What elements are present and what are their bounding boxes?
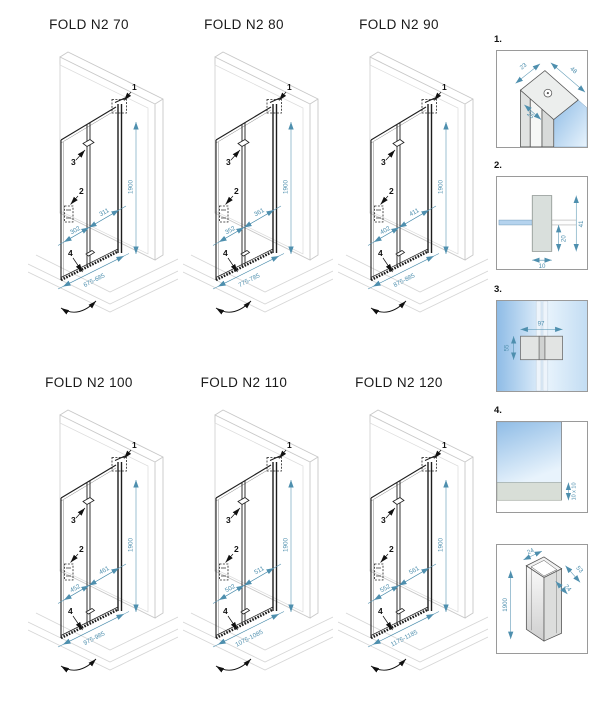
callout-4: 4 bbox=[68, 606, 73, 616]
dim-width-upper: 311 bbox=[98, 207, 111, 218]
callout-2: 2 bbox=[389, 544, 394, 554]
glass-pane bbox=[497, 422, 562, 483]
callout-2: 2 bbox=[79, 544, 84, 554]
fold-spec-sheet: 1. 23 48 25 2. 41 20 10 bbox=[0, 0, 607, 720]
dim-range: 1175-1185 bbox=[390, 629, 420, 649]
callout-1: 1 bbox=[132, 82, 137, 92]
dim-height: 1900 bbox=[438, 180, 445, 195]
diagram-title: FOLD N2 90 bbox=[324, 14, 474, 40]
dim-width-lower: 302 bbox=[69, 225, 82, 236]
detail-2-dim-b: 20 bbox=[560, 235, 567, 242]
dim-range: 1075-1085 bbox=[234, 628, 264, 648]
dim-height: 1900 bbox=[128, 538, 135, 553]
fold-diagram-cell: FOLD N2 120 bbox=[338, 372, 488, 718]
fold-door-drawing: 1 3 2 4 1900 461 452 975-985 bbox=[28, 398, 178, 718]
detail-4-label: 4. bbox=[494, 405, 502, 416]
profile-dim-side: 53 bbox=[574, 565, 584, 575]
diagram-title: FOLD N2 110 bbox=[169, 372, 319, 398]
dim-height: 1900 bbox=[283, 180, 290, 195]
floor-outline bbox=[338, 255, 488, 312]
dim-width-lower: 352 bbox=[224, 225, 237, 236]
floor-outline bbox=[338, 613, 488, 670]
fold-door-drawing: 1 3 2 4 1900 361 352 775-785 bbox=[183, 40, 333, 360]
dim-range: 875-885 bbox=[392, 272, 416, 289]
dim-width-upper: 411 bbox=[408, 207, 421, 218]
dim-height: 1900 bbox=[128, 180, 135, 195]
detail-3-label: 3. bbox=[494, 284, 502, 295]
hinge-glyph bbox=[238, 140, 249, 147]
dim-height: 1900 bbox=[283, 538, 290, 553]
detail-box-3: 3. 97 55 bbox=[496, 300, 588, 392]
callout-3: 3 bbox=[381, 157, 386, 167]
detail-1-corner-profile: 23 48 25 bbox=[497, 51, 587, 147]
detail-1-dim-b: 48 bbox=[568, 66, 578, 76]
dim-width-upper: 511 bbox=[253, 565, 266, 576]
diagram-title: FOLD N2 70 bbox=[14, 14, 164, 40]
detail-4-dim-a: 10 x 10 bbox=[571, 482, 577, 500]
fold-door-drawing: 1 3 2 4 1900 561 552 1175-1185 bbox=[338, 398, 488, 718]
callout-3: 3 bbox=[226, 157, 231, 167]
fold-door-drawing: 1 3 2 4 1900 411 402 875-885 bbox=[338, 40, 488, 360]
detail-1-dim-a: 23 bbox=[519, 61, 529, 71]
dimensions: 1900 411 402 875-885 bbox=[368, 122, 446, 289]
profile-dim-inner: 24 bbox=[563, 583, 573, 593]
dimensions: 1900 461 452 975-985 bbox=[58, 480, 136, 647]
detail-2-dim-c: 10 bbox=[539, 263, 546, 269]
callout-1: 1 bbox=[287, 82, 292, 92]
callout-1: 1 bbox=[287, 440, 292, 450]
fold-diagram-cell: FOLD N2 90 bbox=[338, 14, 488, 360]
callout-4: 4 bbox=[223, 248, 228, 258]
callout-1: 1 bbox=[442, 440, 447, 450]
hinge-plate-left bbox=[520, 336, 539, 359]
callout-4: 4 bbox=[378, 606, 383, 616]
detail-3-dim-b: 55 bbox=[504, 344, 511, 351]
floor-outline bbox=[183, 255, 333, 312]
floor-outline bbox=[183, 613, 333, 670]
detail-box-profile: 24 53 24 1900 bbox=[496, 544, 588, 654]
callout-4: 4 bbox=[68, 248, 73, 258]
fold-diagram-cell: FOLD N2 100 bbox=[28, 372, 178, 718]
detail-4-bottom-seal: 10 x 10 bbox=[497, 422, 587, 512]
fold-diagram-cell: FOLD N2 70 bbox=[28, 14, 178, 360]
dim-width-upper: 461 bbox=[98, 565, 111, 576]
callout-3: 3 bbox=[71, 515, 76, 525]
fold-door-drawing: 1 3 2 4 1900 511 502 1075-1085 bbox=[183, 398, 333, 718]
callout-1: 1 bbox=[442, 82, 447, 92]
fold-door-drawing: 1 3 2 4 1900 311 302 675-685 bbox=[28, 40, 178, 360]
detail-2-wall-bracket: 41 20 10 bbox=[497, 177, 587, 269]
detail-3-dim-a: 97 bbox=[538, 320, 545, 327]
dim-width-upper: 361 bbox=[253, 207, 266, 218]
diagram-title: FOLD N2 80 bbox=[169, 14, 319, 40]
diagram-title: FOLD N2 120 bbox=[324, 372, 474, 398]
detail-3-hinge: 97 55 bbox=[497, 301, 587, 391]
hinge-glyph bbox=[83, 140, 94, 147]
callout-3: 3 bbox=[226, 515, 231, 525]
profile-section-drawing: 24 53 24 1900 bbox=[497, 545, 587, 653]
dim-width-lower: 552 bbox=[379, 583, 392, 594]
detail-1-label: 1. bbox=[494, 34, 502, 45]
callout-2: 2 bbox=[234, 186, 239, 196]
dim-width-lower: 452 bbox=[69, 583, 82, 594]
detail-box-4: 4. 10 x 10 bbox=[496, 421, 588, 513]
dim-range: 675-685 bbox=[82, 272, 106, 289]
callout-3: 3 bbox=[71, 157, 76, 167]
hinge-glyph bbox=[393, 498, 404, 505]
callout-2: 2 bbox=[389, 186, 394, 196]
fold-diagram-cell: FOLD N2 80 bbox=[183, 14, 333, 360]
dim-height: 1900 bbox=[438, 538, 445, 553]
fold-diagram-cell: FOLD N2 110 bbox=[183, 372, 333, 718]
callout-2: 2 bbox=[234, 544, 239, 554]
callout-3: 3 bbox=[381, 515, 386, 525]
hinge-glyph bbox=[393, 140, 404, 147]
detail-box-1: 1. 23 48 25 bbox=[496, 50, 588, 148]
dim-width-upper: 561 bbox=[408, 565, 421, 576]
hinge-glyph bbox=[83, 498, 94, 505]
callout-4: 4 bbox=[378, 248, 383, 258]
detail-box-2: 2. 41 20 10 bbox=[496, 176, 588, 270]
hinge-glyph bbox=[238, 498, 249, 505]
callout-2: 2 bbox=[79, 186, 84, 196]
callout-1: 1 bbox=[132, 440, 137, 450]
dim-width-lower: 402 bbox=[379, 225, 392, 236]
floor-outline bbox=[28, 255, 178, 312]
dimensions: 1900 361 352 775-785 bbox=[213, 122, 291, 289]
dim-width-lower: 502 bbox=[224, 583, 237, 594]
dimensions: 1900 311 302 675-685 bbox=[58, 122, 136, 289]
detail-2-label: 2. bbox=[494, 160, 502, 171]
profile-dim-height: 1900 bbox=[502, 597, 509, 611]
bracket-body bbox=[532, 196, 552, 252]
diagram-title: FOLD N2 100 bbox=[14, 372, 164, 398]
dim-range: 975-985 bbox=[82, 630, 106, 647]
seal-strip bbox=[497, 483, 562, 501]
detail-2-dim-a: 41 bbox=[578, 220, 585, 227]
dim-range: 775-785 bbox=[237, 272, 261, 289]
hinge-plate-right bbox=[545, 336, 563, 359]
callout-4: 4 bbox=[223, 606, 228, 616]
floor-outline bbox=[28, 613, 178, 670]
glass-strip bbox=[499, 220, 532, 225]
